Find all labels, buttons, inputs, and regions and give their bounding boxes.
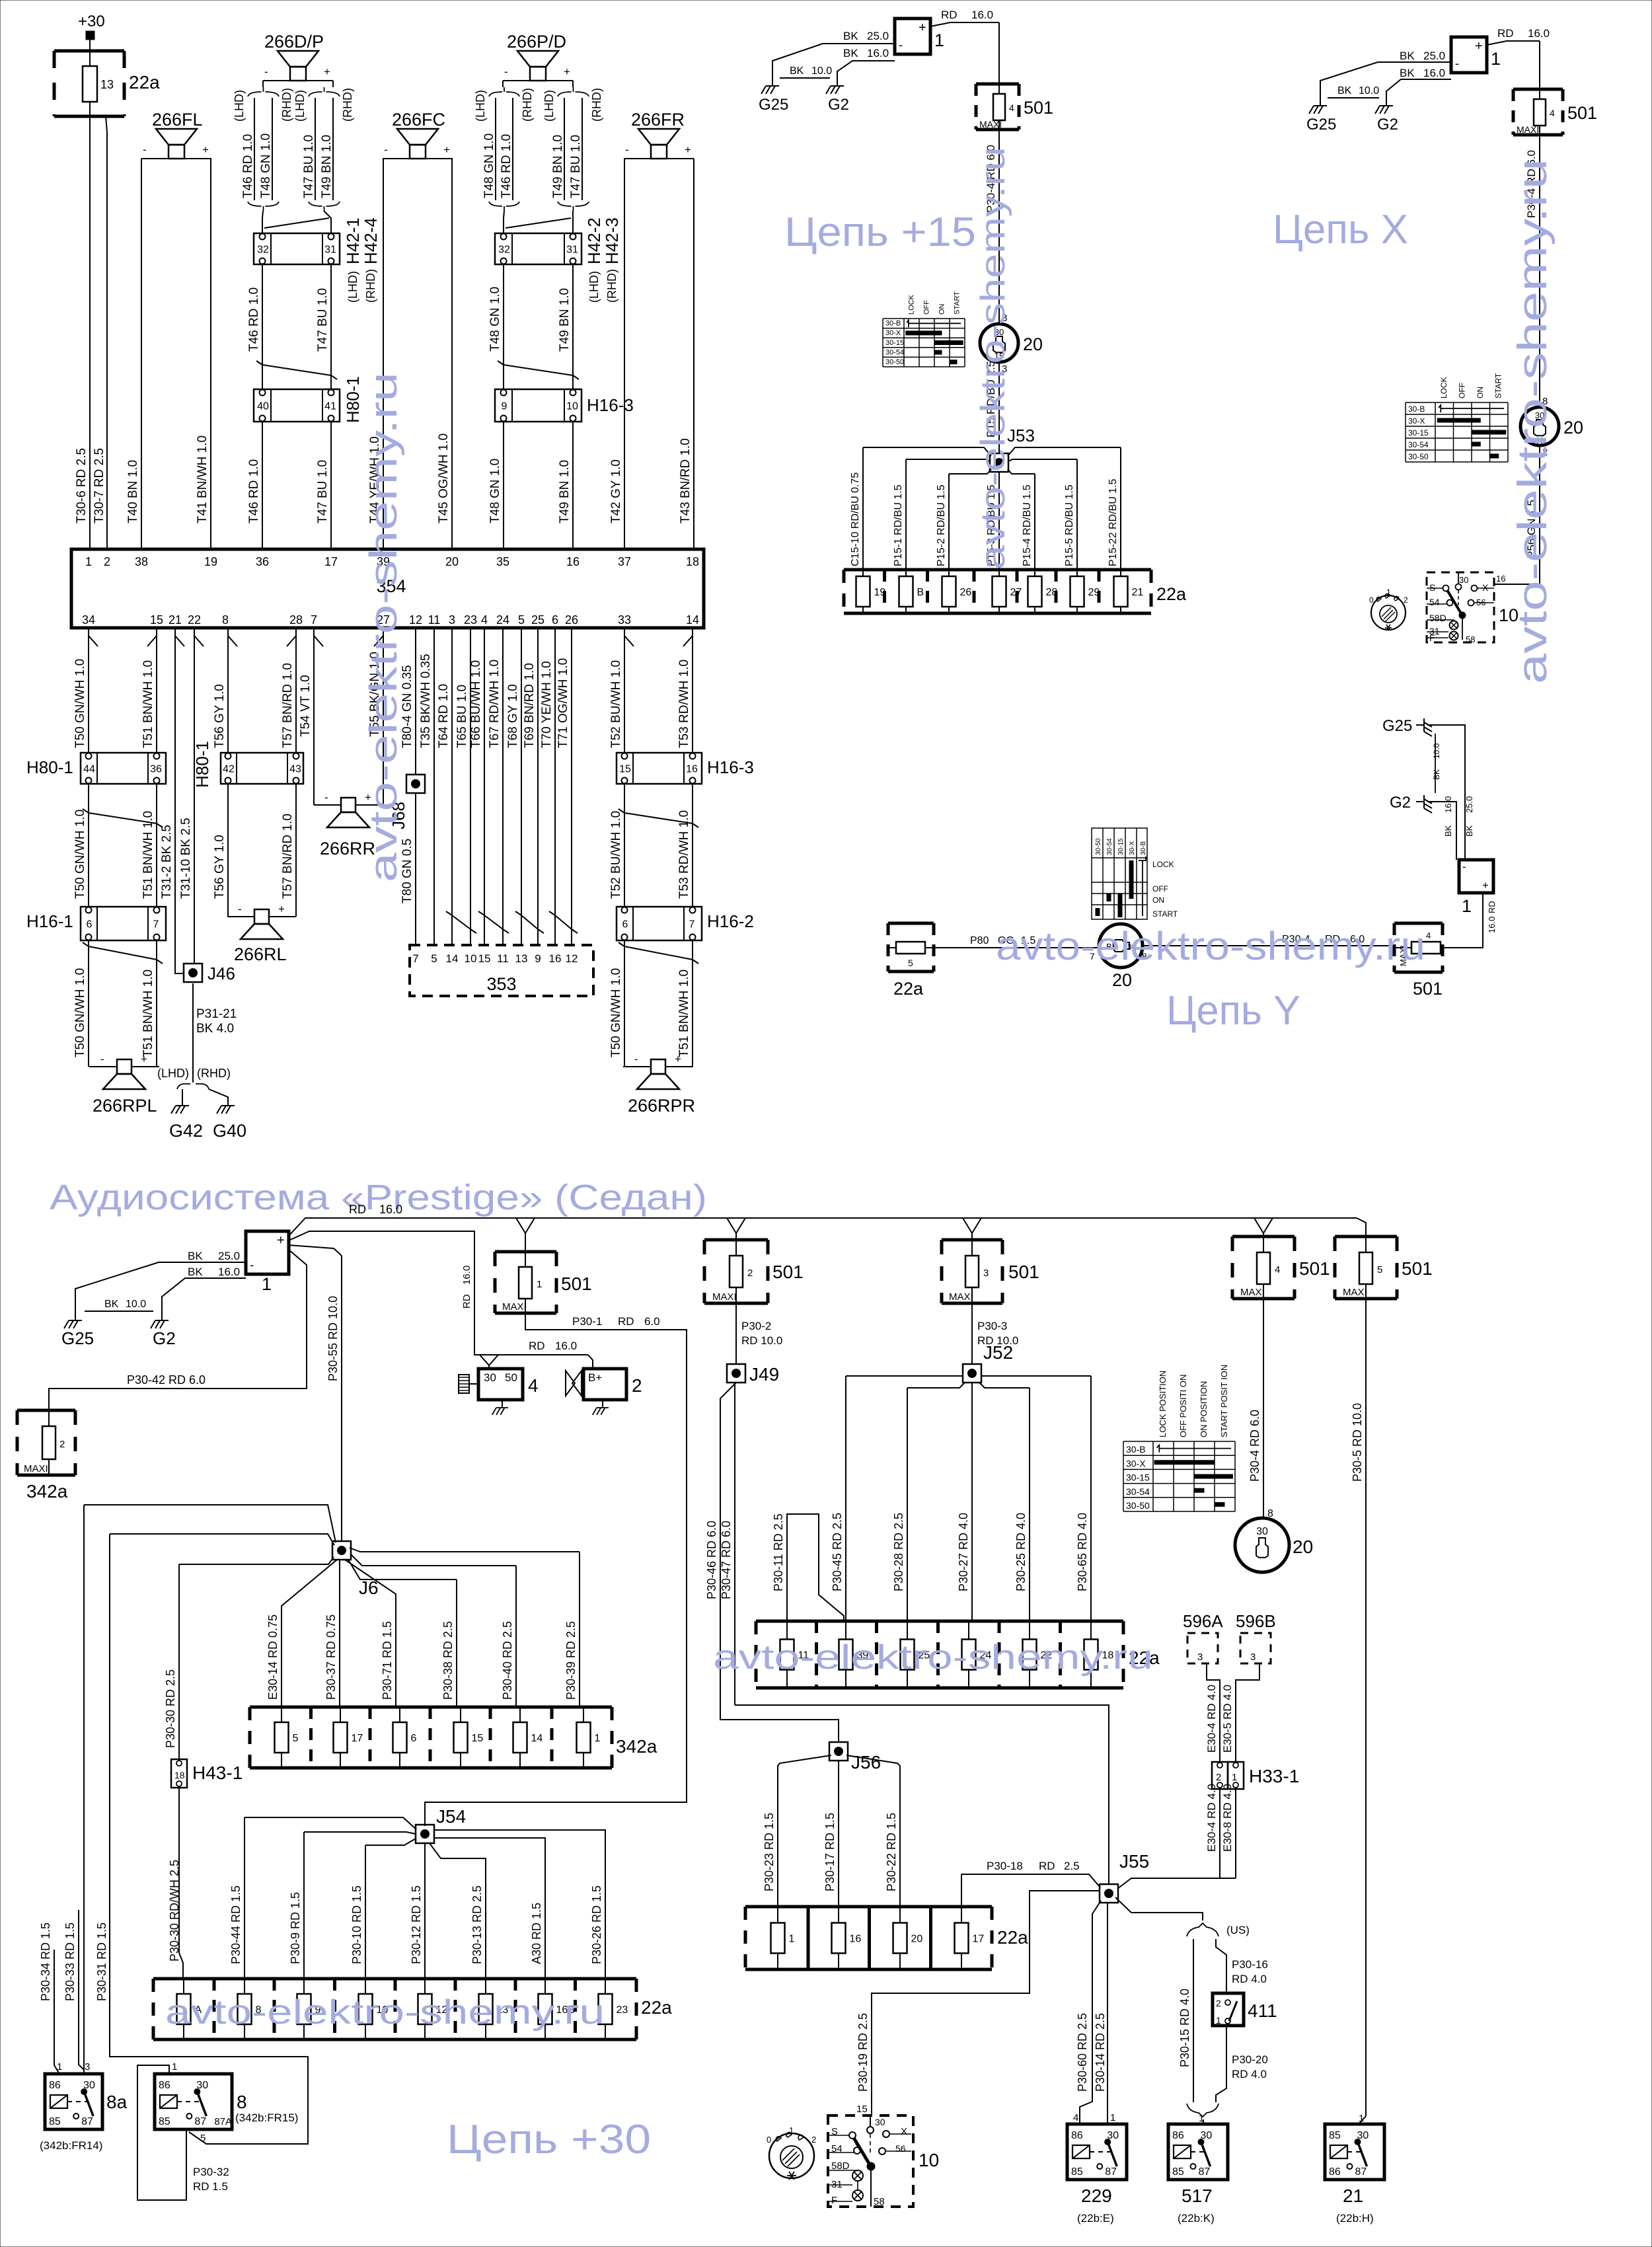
- svg-text:-: -: [504, 65, 508, 78]
- svg-text:LOCK: LOCK: [907, 294, 915, 315]
- svg-text:J46: J46: [207, 964, 235, 983]
- svg-text:P30-20: P30-20: [1232, 2053, 1268, 2066]
- svg-text:G2: G2: [1390, 794, 1411, 812]
- svg-text:3: 3: [449, 613, 455, 627]
- svg-text:87: 87: [1199, 2166, 1211, 2178]
- svg-text:(RHD): (RHD): [197, 1067, 231, 1080]
- svg-text:11: 11: [497, 952, 509, 965]
- svg-text:T50 GN/WH 1.0: T50 GN/WH 1.0: [73, 810, 87, 899]
- svg-text:87: 87: [1355, 2166, 1367, 2178]
- svg-text:G25: G25: [61, 1328, 94, 1348]
- svg-text:P30-71 RD 1.5: P30-71 RD 1.5: [381, 1621, 394, 1700]
- svg-text:+: +: [675, 1053, 681, 1065]
- svg-text:8: 8: [237, 2092, 247, 2112]
- svg-text:T64 RD 1.0: T64 RD 1.0: [437, 684, 451, 748]
- svg-text:16: 16: [686, 764, 698, 775]
- svg-text:X: X: [1482, 582, 1489, 593]
- svg-text:22a: 22a: [893, 979, 924, 999]
- svg-text:30-54: 30-54: [1106, 838, 1113, 855]
- svg-text:6.0: 6.0: [644, 1315, 660, 1328]
- svg-text:0: 0: [1369, 595, 1374, 605]
- svg-text:5: 5: [908, 958, 913, 968]
- svg-text:P30-28 RD 2.5: P30-28 RD 2.5: [892, 1513, 905, 1591]
- svg-text:H80-1: H80-1: [343, 376, 363, 423]
- svg-text:(LHD): (LHD): [346, 271, 359, 303]
- svg-text:9: 9: [502, 401, 507, 412]
- svg-text:RD: RD: [941, 9, 957, 21]
- svg-text:G25: G25: [759, 96, 788, 114]
- svg-text:avto-elektro-shemy.ru: avto-elektro-shemy.ru: [165, 1993, 605, 2032]
- svg-text:16.0: 16.0: [1443, 796, 1453, 813]
- svg-text:T47 BU 1.0: T47 BU 1.0: [569, 135, 583, 198]
- svg-text:(RHD): (RHD): [341, 88, 354, 122]
- svg-text:37: 37: [618, 555, 631, 568]
- svg-text:G2: G2: [153, 1328, 176, 1348]
- svg-text:T57 BN/RD 1.0: T57 BN/RD 1.0: [281, 663, 295, 748]
- svg-text:BK: BK: [843, 47, 858, 59]
- svg-text:16.0: 16.0: [867, 47, 889, 59]
- svg-text:(22b:E): (22b:E): [1077, 2212, 1114, 2225]
- svg-text:24: 24: [496, 613, 509, 627]
- svg-text:501: 501: [1024, 98, 1053, 118]
- svg-text:30: 30: [196, 2080, 208, 2091]
- svg-text:2: 2: [59, 1439, 65, 1450]
- svg-text:MAXI: MAXI: [24, 1463, 48, 1474]
- svg-text:87: 87: [194, 2116, 206, 2127]
- svg-text:8: 8: [222, 613, 229, 627]
- svg-text:2.5: 2.5: [1064, 1860, 1080, 1872]
- svg-text:26: 26: [565, 613, 578, 627]
- svg-text:266FR: 266FR: [631, 110, 685, 130]
- svg-text:J54: J54: [436, 1806, 466, 1827]
- svg-text:4: 4: [1009, 102, 1014, 113]
- svg-text:5: 5: [518, 613, 525, 627]
- svg-text:T46 RD 1.0: T46 RD 1.0: [247, 287, 261, 352]
- svg-text:H16-3: H16-3: [587, 395, 634, 415]
- svg-text:34: 34: [82, 613, 95, 627]
- svg-text:16.0: 16.0: [379, 1203, 402, 1216]
- svg-text:25.0: 25.0: [218, 1250, 240, 1262]
- svg-text:15: 15: [472, 1733, 484, 1744]
- svg-text:B+: B+: [588, 1371, 602, 1384]
- svg-text:30-B: 30-B: [885, 320, 901, 328]
- svg-text:F: F: [831, 2195, 837, 2206]
- svg-text:P30-32: P30-32: [193, 2166, 229, 2178]
- svg-text:22a: 22a: [129, 72, 160, 93]
- svg-text:-: -: [100, 1053, 104, 1065]
- svg-text:501: 501: [1402, 1258, 1433, 1279]
- svg-text:86: 86: [1329, 2166, 1341, 2178]
- svg-text:30: 30: [875, 2117, 885, 2127]
- svg-text:P30-55 RD 10.0: P30-55 RD 10.0: [326, 1296, 340, 1381]
- svg-text:BK: BK: [1432, 769, 1441, 780]
- svg-text:P30-11 RD 2.5: P30-11 RD 2.5: [772, 1513, 785, 1591]
- svg-text:-: -: [899, 38, 903, 52]
- svg-text:3: 3: [1197, 1652, 1203, 1663]
- svg-text:P30-30 RD 2.5: P30-30 RD 2.5: [164, 1669, 177, 1748]
- svg-text:40: 40: [257, 401, 269, 412]
- svg-text:P30-42 RD 6.0: P30-42 RD 6.0: [127, 1373, 206, 1387]
- svg-text:30: 30: [1107, 2130, 1119, 2141]
- svg-text:22a: 22a: [641, 1997, 672, 2018]
- svg-text:25.0: 25.0: [867, 30, 889, 42]
- svg-text:P30-10 RD 1.5: P30-10 RD 1.5: [350, 1885, 363, 1964]
- svg-text:H33-1: H33-1: [1249, 1766, 1299, 1786]
- svg-text:E30-14 RD 0.75: E30-14 RD 0.75: [266, 1615, 280, 1700]
- svg-text:16.0: 16.0: [1528, 27, 1550, 40]
- svg-text:P30-23 RD 1.5: P30-23 RD 1.5: [763, 1813, 776, 1891]
- svg-text:58: 58: [1466, 634, 1475, 644]
- svg-text:J56: J56: [851, 1752, 881, 1772]
- svg-text:P30-15 RD 4.0: P30-15 RD 4.0: [1178, 1989, 1191, 2067]
- svg-text:7: 7: [311, 613, 317, 627]
- svg-text:18: 18: [174, 1770, 185, 1780]
- svg-text:RD 4.0: RD 4.0: [1232, 2068, 1267, 2080]
- svg-text:T47 BU 1.0: T47 BU 1.0: [302, 135, 316, 198]
- svg-text:T49 BN 1.0: T49 BN 1.0: [320, 135, 334, 198]
- svg-text:OFF: OFF: [922, 300, 930, 315]
- svg-text:25: 25: [531, 613, 544, 627]
- svg-text:20: 20: [1023, 334, 1043, 354]
- svg-text:266P/D: 266P/D: [507, 32, 566, 52]
- svg-text:H16-1: H16-1: [26, 911, 73, 931]
- svg-text:T47 BU 1.0: T47 BU 1.0: [316, 460, 330, 523]
- svg-text:P30-27 RD 4.0: P30-27 RD 4.0: [957, 1513, 970, 1591]
- svg-text:T35 BK/WH 0.35: T35 BK/WH 0.35: [419, 654, 433, 748]
- svg-text:30-15: 30-15: [885, 339, 904, 347]
- svg-text:LOCK POSITION: LOCK POSITION: [1158, 1371, 1168, 1437]
- svg-text:P30-37 RD 0.75: P30-37 RD 0.75: [324, 1615, 338, 1700]
- svg-text:17: 17: [324, 555, 338, 568]
- svg-text:2: 2: [1216, 1998, 1221, 2008]
- svg-text:501: 501: [1299, 1258, 1330, 1279]
- svg-text:T51 BN/WH 1.0: T51 BN/WH 1.0: [141, 811, 155, 899]
- svg-text:(LHD): (LHD): [474, 90, 487, 122]
- svg-text:(342b:FR14): (342b:FR14): [40, 2139, 102, 2152]
- svg-text:T54 VT 1.0: T54 VT 1.0: [299, 675, 313, 737]
- svg-text:1: 1: [1199, 2113, 1204, 2124]
- svg-text:30-B: 30-B: [1408, 404, 1425, 414]
- svg-text:G2: G2: [1377, 116, 1398, 133]
- svg-text:43: 43: [289, 764, 301, 775]
- svg-text:2: 2: [811, 2135, 816, 2145]
- svg-text:30-15: 30-15: [1408, 428, 1429, 438]
- svg-text:P30-34 RD 1.5: P30-34 RD 1.5: [39, 1923, 52, 2001]
- svg-text:T49 BN 1.0: T49 BN 1.0: [558, 288, 572, 352]
- svg-text:G42: G42: [169, 1121, 203, 1141]
- svg-text:MAXI: MAXI: [1343, 1287, 1367, 1298]
- svg-text:16.0: 16.0: [1487, 917, 1497, 933]
- svg-text:START POSIT ION: START POSIT ION: [1219, 1365, 1229, 1437]
- svg-text:26: 26: [960, 587, 972, 598]
- svg-text:+: +: [564, 65, 570, 78]
- svg-text:16.0: 16.0: [461, 1266, 472, 1285]
- svg-text:-: -: [634, 1053, 638, 1065]
- svg-text:2: 2: [1404, 595, 1408, 605]
- svg-text:ON: ON: [1152, 895, 1164, 905]
- svg-text:P30-13 RD 2.5: P30-13 RD 2.5: [470, 1885, 484, 1964]
- svg-text:avto-elektro-shemy.ru: avto-elektro-shemy.ru: [1510, 159, 1556, 684]
- svg-text:MAXI: MAXI: [949, 1291, 973, 1303]
- svg-text:BK: BK: [1400, 67, 1415, 79]
- svg-text:596B: 596B: [1236, 1611, 1276, 1631]
- svg-text:342a: 342a: [616, 1736, 657, 1757]
- svg-text:P30-47 RD 6.0: P30-47 RD 6.0: [720, 1521, 733, 1599]
- svg-text:P15-4 RD/BU 1.5: P15-4 RD/BU 1.5: [1022, 484, 1033, 566]
- svg-text:P15-1 RD/BU 1.5: P15-1 RD/BU 1.5: [893, 484, 904, 566]
- svg-text:T69 BN/RD 1.0: T69 BN/RD 1.0: [523, 663, 537, 748]
- svg-text:LOCK: LOCK: [1439, 377, 1448, 399]
- svg-text:P30-39 RD 2.5: P30-39 RD 2.5: [564, 1621, 578, 1700]
- svg-text:30-X: 30-X: [1408, 416, 1425, 426]
- svg-text:5: 5: [1377, 1264, 1382, 1276]
- svg-text:30-15: 30-15: [1117, 838, 1125, 855]
- svg-text:1: 1: [789, 1934, 795, 1945]
- svg-text:30-X: 30-X: [1129, 841, 1136, 855]
- svg-text:(RHD): (RHD): [605, 269, 619, 303]
- svg-text:5: 5: [293, 1733, 299, 1744]
- svg-text:+: +: [277, 1233, 285, 1248]
- svg-text:BK: BK: [1443, 825, 1453, 837]
- svg-text:T31-10 BK 2.5: T31-10 BK 2.5: [179, 818, 193, 899]
- svg-text:G25: G25: [1382, 717, 1412, 735]
- svg-text:20: 20: [1563, 418, 1583, 438]
- svg-text:+: +: [1475, 39, 1483, 54]
- svg-text:B: B: [917, 587, 924, 598]
- svg-text:30-54: 30-54: [1408, 440, 1429, 449]
- svg-text:T50 GN/WH 1.0: T50 GN/WH 1.0: [609, 968, 623, 1057]
- svg-text:+: +: [685, 143, 691, 156]
- svg-text:T42 GY 1.0: T42 GY 1.0: [609, 459, 623, 523]
- svg-text:1: 1: [1232, 1772, 1237, 1783]
- svg-text:7: 7: [412, 952, 418, 965]
- svg-text:E30-8 RD 4.0: E30-8 RD 4.0: [1221, 1784, 1234, 1852]
- svg-text:(LHD): (LHD): [157, 1067, 189, 1080]
- svg-text:P30-60 RD 2.5: P30-60 RD 2.5: [1076, 2013, 1089, 2092]
- svg-text:(22b:H): (22b:H): [1336, 2212, 1374, 2225]
- svg-text:36: 36: [256, 555, 269, 568]
- svg-text:RD: RD: [1487, 901, 1497, 913]
- svg-text:RD: RD: [461, 1294, 472, 1309]
- svg-text:P30-3: P30-3: [977, 1320, 1007, 1332]
- svg-text:RD: RD: [529, 1340, 545, 1352]
- svg-text:-: -: [238, 903, 242, 915]
- svg-text:RD: RD: [618, 1315, 634, 1328]
- svg-text:T50 GN/WH 1.0: T50 GN/WH 1.0: [73, 659, 87, 748]
- svg-text:(RHD): (RHD): [521, 88, 534, 122]
- svg-text:1: 1: [262, 1274, 272, 1294]
- svg-text:OFF: OFF: [1152, 884, 1168, 894]
- svg-text:4: 4: [1426, 931, 1431, 940]
- svg-text:BK: BK: [1337, 85, 1352, 96]
- svg-text:501: 501: [1008, 1262, 1039, 1282]
- svg-text:30-15: 30-15: [1126, 1472, 1150, 1483]
- svg-text:T68 GY 1.0: T68 GY 1.0: [506, 684, 520, 748]
- svg-text:16.0: 16.0: [218, 1266, 240, 1278]
- svg-text:+: +: [278, 903, 285, 915]
- svg-text:23: 23: [617, 2004, 628, 2016]
- svg-text:44: 44: [83, 764, 95, 775]
- svg-text:30-54: 30-54: [1126, 1486, 1150, 1497]
- svg-text:32: 32: [257, 245, 269, 256]
- svg-text:11: 11: [428, 613, 441, 627]
- svg-text:T53 RD/WH 1.0: T53 RD/WH 1.0: [677, 810, 691, 899]
- svg-text:7: 7: [153, 919, 159, 931]
- svg-text:P15-22 RD/BU 1.5: P15-22 RD/BU 1.5: [1108, 478, 1119, 566]
- svg-text:BK: BK: [188, 1250, 203, 1262]
- svg-text:Цепь +15: Цепь +15: [784, 209, 976, 255]
- svg-text:16.0: 16.0: [971, 9, 993, 21]
- svg-text:266D/P: 266D/P: [264, 32, 324, 52]
- svg-text:21: 21: [169, 613, 182, 627]
- svg-text:266RPR: 266RPR: [628, 1096, 695, 1116]
- svg-text:P30-31 RD 1.5: P30-31 RD 1.5: [95, 1923, 108, 2001]
- svg-text:T41 BN/WH 1.0: T41 BN/WH 1.0: [196, 436, 209, 523]
- svg-text:T52 BU/WH 1.0: T52 BU/WH 1.0: [609, 811, 623, 899]
- svg-text:16.0: 16.0: [555, 1340, 577, 1352]
- svg-text:P31-21: P31-21: [196, 1007, 237, 1021]
- svg-text:2: 2: [747, 1268, 753, 1279]
- svg-text:T49 BN 1.0: T49 BN 1.0: [551, 135, 565, 198]
- svg-text:Цепь X: Цепь X: [1273, 207, 1408, 252]
- svg-text:38: 38: [135, 555, 148, 568]
- svg-text:T48 GN 1.0: T48 GN 1.0: [259, 133, 273, 198]
- svg-text:C15-10 RD/BU 0.75: C15-10 RD/BU 0.75: [850, 473, 861, 566]
- svg-text:6: 6: [622, 919, 628, 931]
- svg-text:30-50: 30-50: [1095, 838, 1102, 855]
- svg-text:P30-1: P30-1: [572, 1315, 602, 1328]
- svg-text:P30-46 RD 6.0: P30-46 RD 6.0: [705, 1521, 718, 1599]
- svg-text:16.0: 16.0: [1423, 67, 1445, 79]
- svg-text:30-X: 30-X: [885, 329, 901, 337]
- svg-text:2: 2: [1216, 1772, 1221, 1783]
- svg-text:1: 1: [172, 2061, 177, 2073]
- svg-text:501: 501: [772, 1262, 804, 1282]
- svg-text:12: 12: [409, 613, 422, 627]
- svg-text:T56 GY 1.0: T56 GY 1.0: [213, 835, 227, 899]
- svg-text:30-X: 30-X: [1126, 1458, 1146, 1468]
- svg-text:22a: 22a: [1156, 584, 1187, 604]
- svg-text:ON POSITION: ON POSITION: [1199, 1381, 1209, 1437]
- svg-text:-: -: [143, 143, 147, 156]
- svg-text:T45 OG/WH 1.0: T45 OG/WH 1.0: [437, 434, 451, 523]
- svg-text:12: 12: [566, 952, 578, 965]
- svg-text:21: 21: [1343, 2186, 1363, 2206]
- svg-text:266FL: 266FL: [152, 110, 203, 130]
- svg-text:(342b:FR15): (342b:FR15): [235, 2112, 298, 2124]
- svg-text:RD 4.0: RD 4.0: [1232, 1973, 1267, 1985]
- svg-text:85: 85: [159, 2116, 170, 2127]
- svg-text:J49: J49: [749, 1364, 779, 1385]
- svg-text:9: 9: [535, 952, 541, 965]
- svg-text:87A: 87A: [214, 2116, 232, 2127]
- svg-text:16: 16: [850, 1934, 862, 1945]
- svg-text:50: 50: [505, 1371, 517, 1384]
- svg-text:17: 17: [352, 1733, 363, 1744]
- svg-text:RD: RD: [1039, 1860, 1055, 1872]
- svg-text:T48 GN 1.0: T48 GN 1.0: [488, 459, 502, 523]
- svg-text:5: 5: [431, 952, 437, 965]
- svg-text:(RHD): (RHD): [280, 88, 293, 122]
- svg-text:T67 RD/WH 1.0: T67 RD/WH 1.0: [488, 660, 502, 748]
- svg-text:6: 6: [411, 1733, 417, 1744]
- svg-text:T56 GY 1.0: T56 GY 1.0: [213, 684, 227, 748]
- svg-text:BK 4.0: BK 4.0: [196, 1022, 234, 1036]
- svg-text:596A: 596A: [1183, 1611, 1223, 1631]
- svg-text:30: 30: [484, 1371, 496, 1384]
- svg-text:1: 1: [57, 2061, 62, 2073]
- svg-text:T57 BN/RD 1.0: T57 BN/RD 1.0: [281, 814, 295, 899]
- svg-text:+: +: [324, 65, 330, 78]
- svg-text:10.0: 10.0: [126, 1299, 146, 1310]
- svg-text:1: 1: [1386, 588, 1391, 597]
- svg-text:BK: BK: [188, 1266, 203, 1278]
- svg-text:H16-3: H16-3: [707, 757, 754, 777]
- svg-text:BK: BK: [104, 1299, 119, 1310]
- svg-text:(LHD): (LHD): [233, 90, 246, 122]
- svg-text:87: 87: [81, 2116, 93, 2127]
- svg-text:86: 86: [159, 2080, 170, 2091]
- svg-text:15: 15: [478, 952, 491, 965]
- svg-text:-: -: [1462, 860, 1466, 873]
- svg-text:28: 28: [289, 613, 303, 627]
- svg-text:P30-5 RD 10.0: P30-5 RD 10.0: [1351, 1403, 1364, 1482]
- svg-text:3: 3: [1250, 1652, 1256, 1663]
- svg-text:36: 36: [150, 764, 162, 775]
- svg-text:42: 42: [223, 764, 235, 775]
- svg-text:S: S: [1429, 582, 1435, 593]
- svg-text:H80-1: H80-1: [26, 757, 73, 777]
- svg-text:87: 87: [1105, 2166, 1117, 2178]
- svg-text:RD 10.0: RD 10.0: [741, 1334, 782, 1347]
- svg-text:(LHD): (LHD): [543, 90, 556, 122]
- svg-text:OFF POSITI ON: OFF POSITI ON: [1178, 1375, 1188, 1437]
- svg-text:P30-33 RD 1.5: P30-33 RD 1.5: [63, 1923, 77, 2001]
- svg-text:13: 13: [100, 78, 114, 91]
- svg-text:10.0: 10.0: [1432, 743, 1441, 759]
- svg-text:J55: J55: [1119, 1851, 1149, 1872]
- svg-text:A30 RD 1.5: A30 RD 1.5: [530, 1903, 543, 1964]
- svg-text:T47 BU 1.0: T47 BU 1.0: [316, 288, 330, 352]
- svg-text:30: 30: [1459, 575, 1468, 585]
- svg-text:ON: ON: [1476, 387, 1485, 399]
- svg-text:1: 1: [1491, 49, 1501, 69]
- svg-text:MAXI: MAXI: [502, 1301, 527, 1313]
- svg-text:-: -: [625, 143, 629, 156]
- svg-text:RD 1.5: RD 1.5: [193, 2180, 228, 2193]
- svg-text:+: +: [202, 143, 209, 156]
- svg-text:16: 16: [566, 555, 580, 568]
- svg-text:H80-1: H80-1: [192, 741, 212, 788]
- svg-text:T50 GN/WH 1.0: T50 GN/WH 1.0: [73, 968, 87, 1057]
- svg-text:58: 58: [874, 2196, 885, 2207]
- svg-text:86: 86: [49, 2080, 61, 2091]
- svg-text:4: 4: [528, 1375, 539, 1396]
- svg-text:(22b:K): (22b:K): [1178, 2212, 1215, 2225]
- svg-text:T43 BN/RD 1.0: T43 BN/RD 1.0: [679, 438, 693, 523]
- svg-text:MAXI: MAXI: [1517, 124, 1539, 135]
- svg-text:1: 1: [85, 555, 92, 568]
- svg-text:(RHD): (RHD): [364, 269, 377, 303]
- svg-text:T40 BN 1.0: T40 BN 1.0: [126, 460, 140, 523]
- svg-text:avto-elektro-shemy.ru: avto-elektro-shemy.ru: [362, 372, 405, 882]
- svg-text:5: 5: [200, 2133, 206, 2144]
- svg-text:25.0: 25.0: [1423, 50, 1445, 62]
- svg-text:10: 10: [566, 401, 578, 412]
- svg-text:E30-4 RD 4.0: E30-4 RD 4.0: [1205, 1784, 1218, 1852]
- svg-text:P80: P80: [970, 935, 989, 946]
- svg-text:13: 13: [515, 952, 528, 965]
